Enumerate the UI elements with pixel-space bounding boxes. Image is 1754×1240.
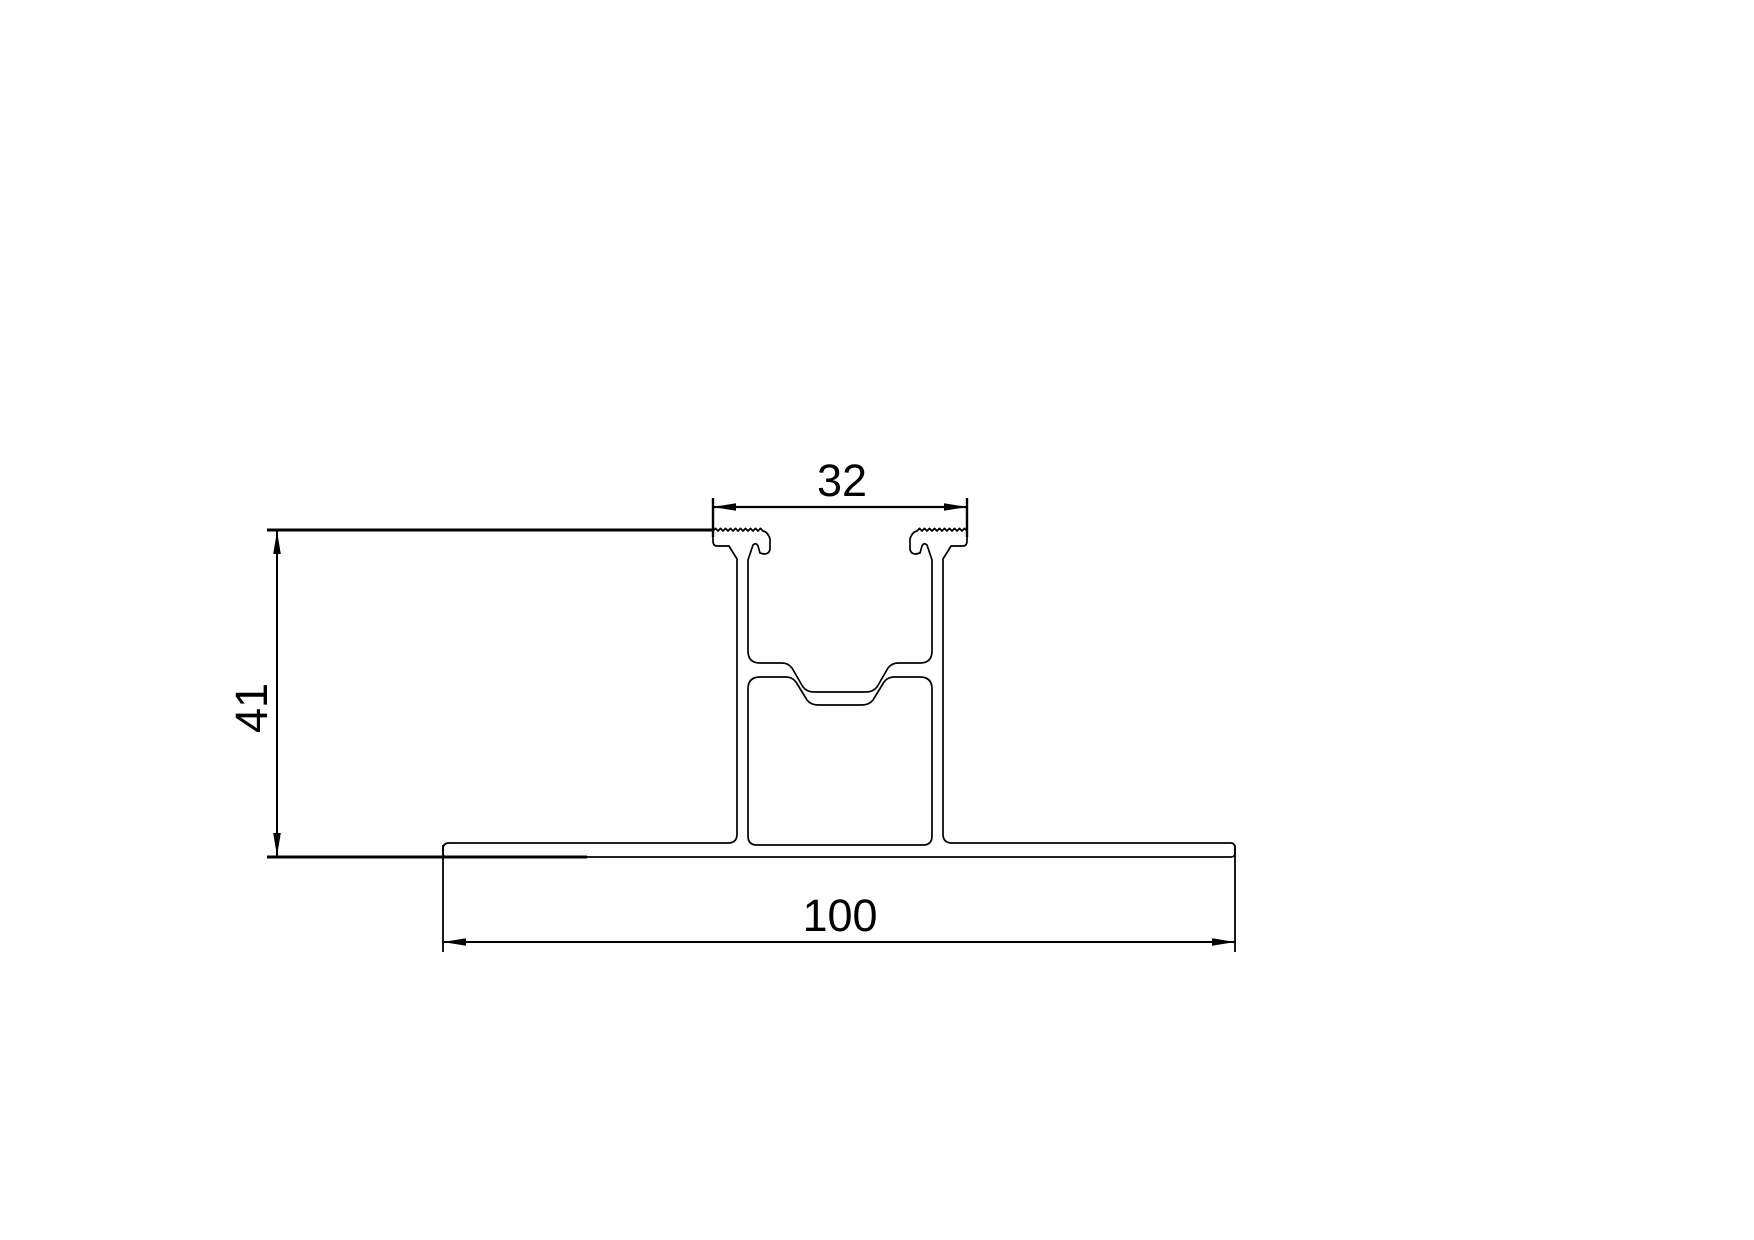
dimension-slot-width: 32 — [713, 455, 967, 537]
profile-geometry — [443, 528, 1235, 857]
profile-outline — [443, 528, 1235, 857]
dim-41-arrow-top — [273, 531, 281, 554]
dim-100-arrow-right — [1212, 938, 1235, 946]
dim-41-arrow-bottom — [273, 833, 281, 856]
dim-32-label: 32 — [817, 455, 867, 506]
dim-100-label: 100 — [802, 890, 877, 941]
dimension-base-width: 100 — [443, 845, 1235, 952]
profile-inner-cavity — [748, 677, 932, 845]
dimension-height: 41 — [226, 530, 713, 857]
dim-32-arrow-left — [713, 503, 736, 511]
dim-32-arrow-right — [944, 503, 967, 511]
profile-drawing-svg: 32 41 100 — [0, 0, 1754, 1240]
dim-100-arrow-left — [443, 938, 466, 946]
technical-drawing-canvas: 32 41 100 — [0, 0, 1754, 1240]
dim-41-label: 41 — [226, 683, 277, 733]
